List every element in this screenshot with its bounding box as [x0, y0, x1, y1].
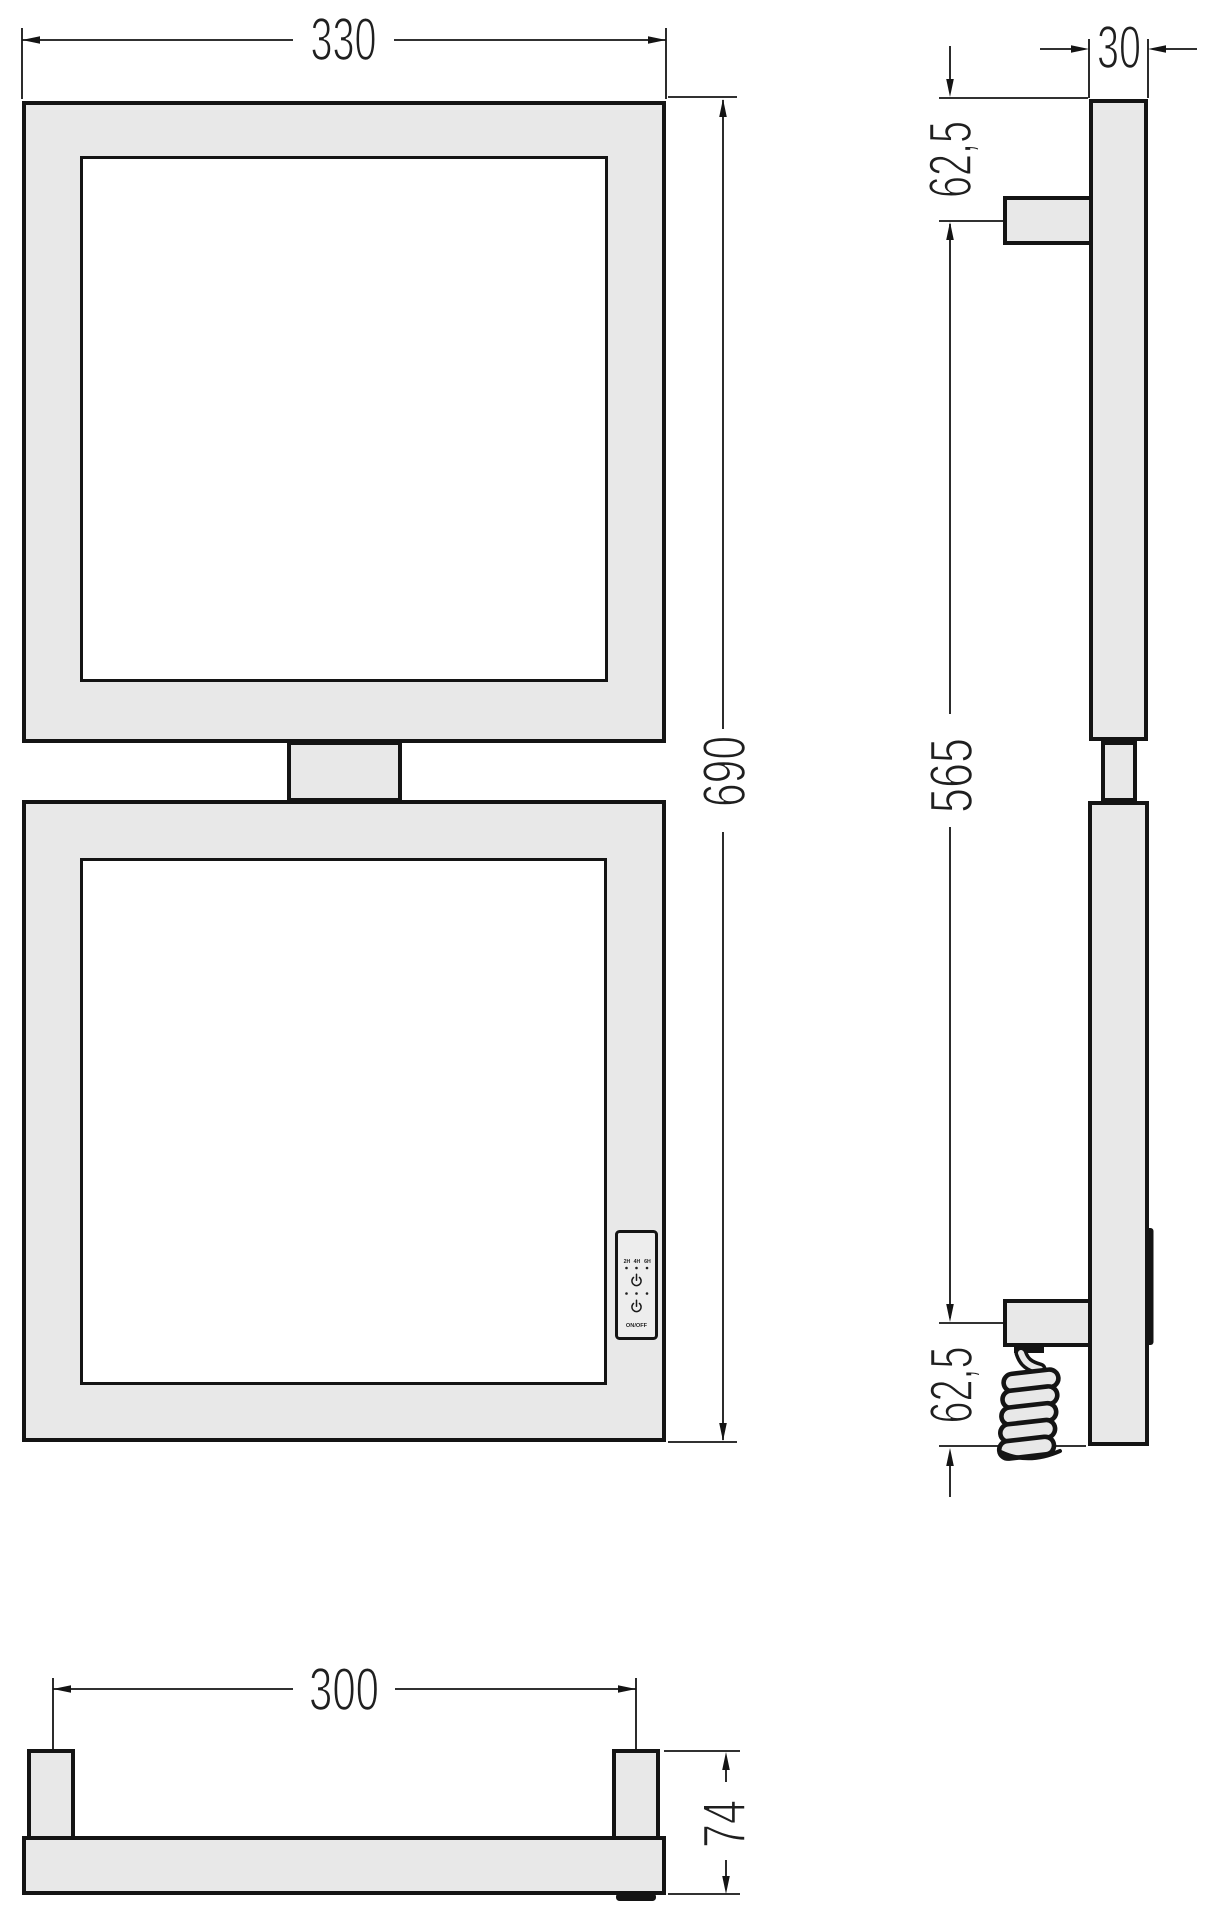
svg-text:4H: 4H [634, 1259, 641, 1265]
svg-text:565: 565 [918, 738, 985, 813]
svg-text:300: 300 [309, 1656, 379, 1723]
svg-text:30: 30 [1097, 14, 1141, 81]
svg-text:6H: 6H [644, 1259, 651, 1265]
svg-text:62,5: 62,5 [917, 121, 984, 198]
svg-text:74: 74 [691, 1800, 758, 1848]
svg-text:690: 690 [691, 736, 758, 807]
svg-text:330: 330 [311, 6, 377, 73]
svg-text:ON/OFF: ON/OFF [626, 1323, 648, 1329]
svg-text:62,5: 62,5 [918, 1347, 985, 1424]
svg-text:2H: 2H [624, 1259, 631, 1265]
